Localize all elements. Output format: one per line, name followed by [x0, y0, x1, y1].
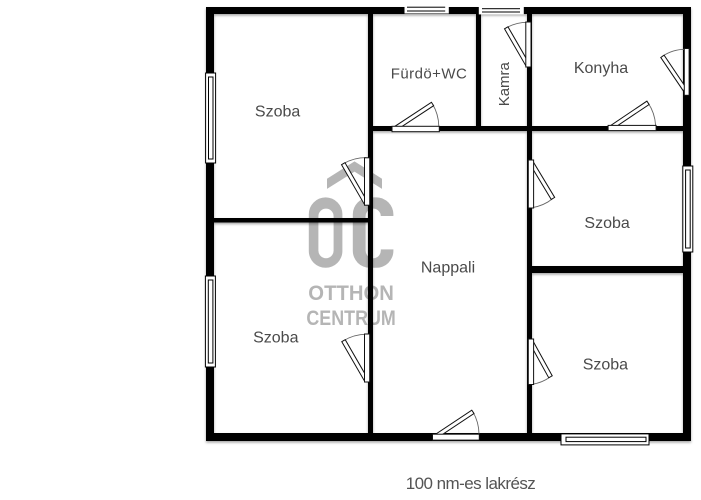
svg-text:Konyha: Konyha	[574, 60, 628, 77]
svg-text:Szoba: Szoba	[583, 357, 628, 374]
svg-text:100 nm-es lakrész: 100 nm-es lakrész	[406, 474, 536, 493]
svg-text:OTTHON: OTTHON	[308, 281, 394, 304]
svg-text:CENTRUM: CENTRUM	[306, 306, 395, 329]
svg-text:Szoba: Szoba	[255, 104, 300, 121]
svg-text:Szoba: Szoba	[584, 215, 629, 232]
svg-text:Szoba: Szoba	[253, 329, 298, 346]
svg-text:Fürdö+WC: Fürdö+WC	[391, 66, 468, 83]
svg-text:Kamra: Kamra	[496, 61, 513, 106]
svg-text:Nappali: Nappali	[421, 259, 475, 276]
